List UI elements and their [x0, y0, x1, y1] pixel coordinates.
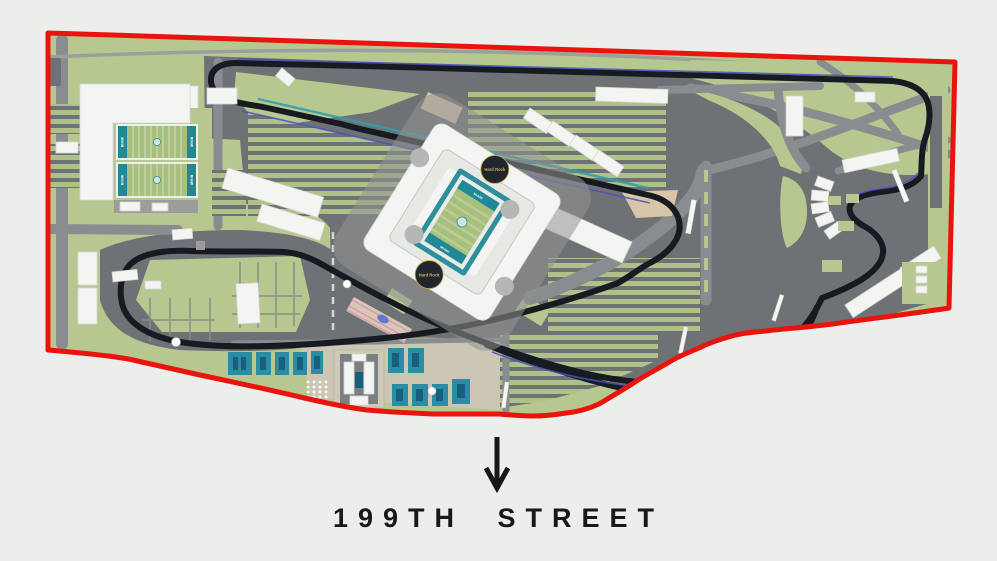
hard-rock-logo-icon: Hard Rock [415, 261, 443, 289]
site-map: MIAMI MIAMI MIAMI MIAMI [0, 0, 997, 561]
svg-text:MIAMI: MIAMI [121, 137, 125, 147]
practice-field-2: MIAMI MIAMI [116, 162, 198, 198]
svg-text:MIAMI: MIAMI [190, 137, 194, 147]
village-central-complex [334, 350, 384, 408]
east-edge-structures [902, 262, 938, 304]
svg-text:Hard Rock: Hard Rock [419, 272, 441, 277]
down-arrow-icon [481, 434, 513, 498]
svg-text:Hard Rock: Hard Rock [484, 167, 506, 172]
hard-rock-logo-icon: Hard Rock [481, 155, 509, 183]
street-label: 199TH STREET [0, 503, 997, 534]
svg-text:MIAMI: MIAMI [121, 175, 125, 185]
practice-field-1: MIAMI MIAMI [116, 124, 198, 160]
svg-text:MIAMI: MIAMI [190, 175, 194, 185]
